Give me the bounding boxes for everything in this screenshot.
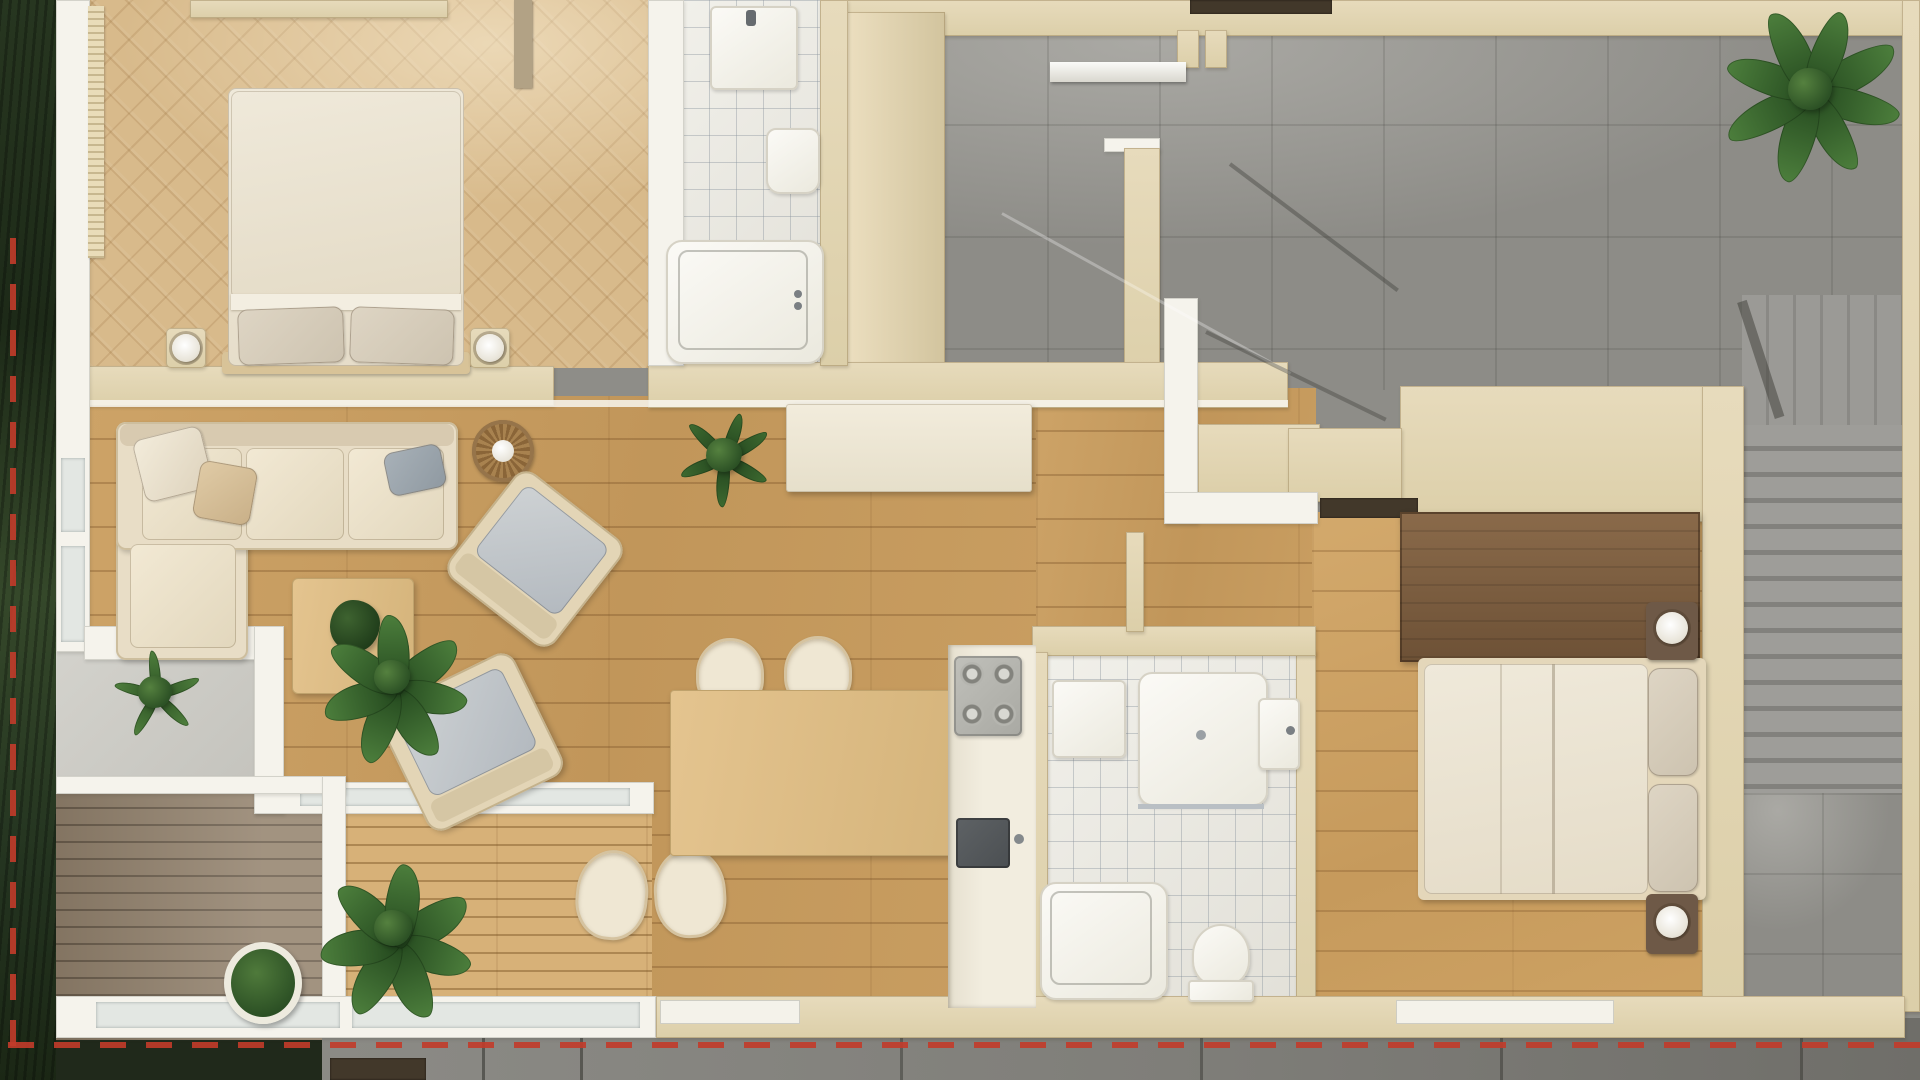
bedroom2-lamp [1656, 612, 1688, 644]
shower-drain [1196, 730, 1206, 740]
stair-base-floor [1742, 793, 1905, 1015]
bottom-window-white [660, 1000, 800, 1024]
left-window [61, 458, 85, 532]
bathtub-faucet [794, 290, 802, 298]
bottom-window [96, 1002, 340, 1028]
corner-plant [1716, 2, 1912, 188]
bottom-window [352, 1002, 640, 1028]
sofa-pillow [191, 459, 258, 526]
boundary-line-bottom [8, 1042, 1920, 1048]
bathroom2-vanity [1052, 680, 1126, 758]
garage-door-opening [1190, 0, 1332, 14]
kitchen-sink [956, 818, 1010, 868]
bedroom1-lamp [476, 334, 504, 362]
bed1-duvet-fold [231, 294, 461, 310]
lawn-strip [0, 0, 58, 1080]
deck-surround-top [56, 776, 346, 794]
bed2-duvet [1424, 664, 1648, 894]
burner [960, 662, 984, 686]
garage-door-jamb [1205, 30, 1227, 68]
sideboard [786, 404, 1032, 492]
bottom-window-white [1396, 1000, 1614, 1024]
bathroom1-toilet [766, 128, 820, 194]
vestibule-wall-horizontal [1164, 492, 1318, 524]
bed2-duvet-fold [1552, 664, 1555, 894]
bathroom1-right-wall [820, 0, 848, 366]
bedroom2-lamp [1656, 906, 1688, 938]
bed2-pillow [1648, 668, 1698, 776]
garage-left-wall [845, 12, 945, 392]
sofa-chaise-cushion [130, 544, 236, 648]
bedroom1-lamp [172, 334, 200, 362]
bathroom2-washbasin [1258, 698, 1300, 770]
garage-door-track [1050, 62, 1186, 82]
washbasin-faucet [1286, 726, 1295, 735]
boundary-line-left [10, 238, 16, 1050]
monstera-plant-upper [316, 602, 468, 754]
staircase-treads [1742, 425, 1905, 793]
burner [992, 662, 1016, 686]
bed2-duvet-fold [1500, 664, 1502, 894]
entry-wall-block [1288, 428, 1402, 502]
bathtub-inner-rim [678, 250, 808, 350]
sofa-cushion [246, 448, 344, 540]
monstera-plant-lower [312, 852, 474, 1004]
burner [992, 702, 1016, 726]
deck-potted-plant [224, 942, 302, 1024]
hall-wall-stub [1126, 532, 1144, 632]
garage-partition-wall [1124, 148, 1160, 392]
floor-plan-render [0, 0, 1920, 1080]
left-window [61, 546, 85, 642]
bathroom2-top-wall [1032, 626, 1316, 656]
bedroom1-wall-stub [514, 0, 532, 88]
shower-glass [1138, 804, 1264, 809]
cooktop [954, 656, 1022, 736]
burner [960, 702, 984, 726]
bathtub-faucet [794, 302, 802, 310]
bedroom1-dresser [190, 0, 448, 18]
bed2-pillow [1648, 784, 1698, 892]
bedroom1-radiator [88, 6, 104, 258]
kitchen-faucet [1014, 834, 1024, 844]
toilet-tank [1188, 980, 1254, 1002]
bathtub2-inner-rim [1050, 891, 1152, 985]
bedroom2-right-wall [1702, 386, 1744, 1008]
bottom-wall-beige [656, 996, 1905, 1038]
bathroom1-faucet [746, 10, 756, 26]
bed1-pillow [349, 306, 455, 366]
hallway-plant [672, 406, 782, 512]
clock-center [492, 440, 514, 462]
living-corner-plant [108, 640, 208, 748]
bed1-duvet [231, 91, 461, 299]
bed1-pillow [237, 306, 345, 366]
bathroom2-toilet [1192, 924, 1250, 986]
basement-window-well [330, 1058, 426, 1080]
dining-table [670, 690, 958, 856]
vestibule-wall-vertical [1164, 298, 1198, 524]
bedroom2-top-wall-band [1400, 386, 1744, 522]
